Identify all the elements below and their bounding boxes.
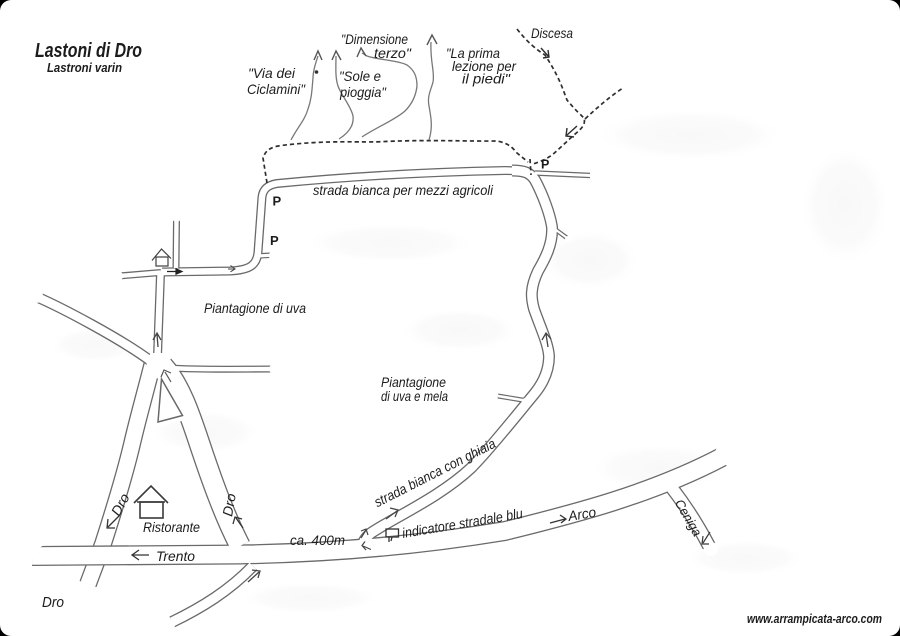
svg-text:il piedi": il piedi" xyxy=(462,71,511,87)
svg-text:Trento: Trento xyxy=(156,548,195,564)
svg-text:"Via dei: "Via dei xyxy=(248,65,296,81)
svg-text:www.arrampicata-arco.com: www.arrampicata-arco.com xyxy=(747,612,882,626)
svg-text:strada bianca per mezzi agrico: strada bianca per mezzi agricoli xyxy=(313,182,494,198)
svg-text:Ciclamini": Ciclamini" xyxy=(247,81,306,97)
svg-text:P: P xyxy=(270,233,279,248)
svg-text:ca. 400m: ca. 400m xyxy=(290,532,345,548)
svg-text:di uva e mela: di uva e mela xyxy=(381,388,448,404)
svg-text:Lastroni varin: Lastroni varin xyxy=(47,60,122,75)
svg-text:"Sole e: "Sole e xyxy=(339,68,381,84)
svg-text:P: P xyxy=(273,194,282,209)
svg-text:Piantagione di uva: Piantagione di uva xyxy=(204,300,306,316)
svg-text:Dro: Dro xyxy=(42,594,64,611)
svg-text:terzo": terzo" xyxy=(374,45,412,61)
svg-text:Ristorante: Ristorante xyxy=(143,519,200,535)
svg-text:pioggia": pioggia" xyxy=(339,84,387,100)
svg-text:P: P xyxy=(541,158,549,172)
svg-text:Discesa: Discesa xyxy=(531,25,573,41)
svg-text:Lastoni di Dro: Lastoni di Dro xyxy=(35,40,142,62)
